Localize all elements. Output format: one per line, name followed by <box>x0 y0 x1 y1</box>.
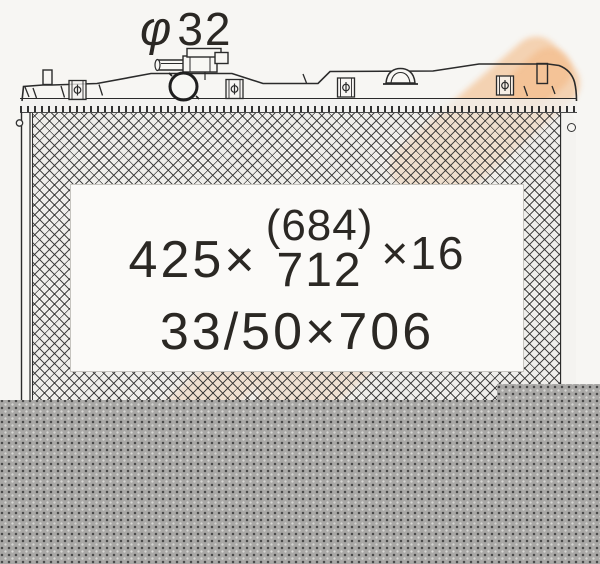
right-plate-bolt-hole <box>567 123 576 132</box>
alt-height-dimension: (684) <box>266 205 374 247</box>
left-side-plate <box>16 112 30 402</box>
dimension-spec-box: 425× (684) 712 ×16 33/50×706 <box>70 184 524 372</box>
mounting-bracket <box>226 80 243 99</box>
core-width-dimension: 425× <box>129 230 258 290</box>
left-mounting-post <box>43 70 52 85</box>
filler-diameter-label: φ32 <box>140 2 232 57</box>
thickness-dimension: ×16 <box>381 226 465 280</box>
drain-dome <box>383 69 418 85</box>
fin-teeth-pattern <box>20 106 577 112</box>
dimension-line-1: 425× (684) 712 ×16 <box>129 207 466 296</box>
diameter-symbol: φ <box>140 3 173 56</box>
tank-fin-strip <box>20 98 577 113</box>
dimension-line-2: 33/50×706 <box>160 302 434 362</box>
radiator-technical-diagram: 425× (684) 712 ×16 33/50×706 φ32 <box>0 0 600 564</box>
right-side-plate <box>560 111 578 396</box>
overflow-tube <box>155 60 186 71</box>
mounting-bracket <box>338 78 355 97</box>
diameter-value: 32 <box>177 3 232 55</box>
left-plate-bolt-hole <box>16 120 22 126</box>
height-dimension: 712 <box>277 247 363 294</box>
mounting-bracket <box>69 81 86 100</box>
filler-neck-ring <box>169 73 199 100</box>
height-dimension-stack: (684) 712 <box>266 205 374 294</box>
